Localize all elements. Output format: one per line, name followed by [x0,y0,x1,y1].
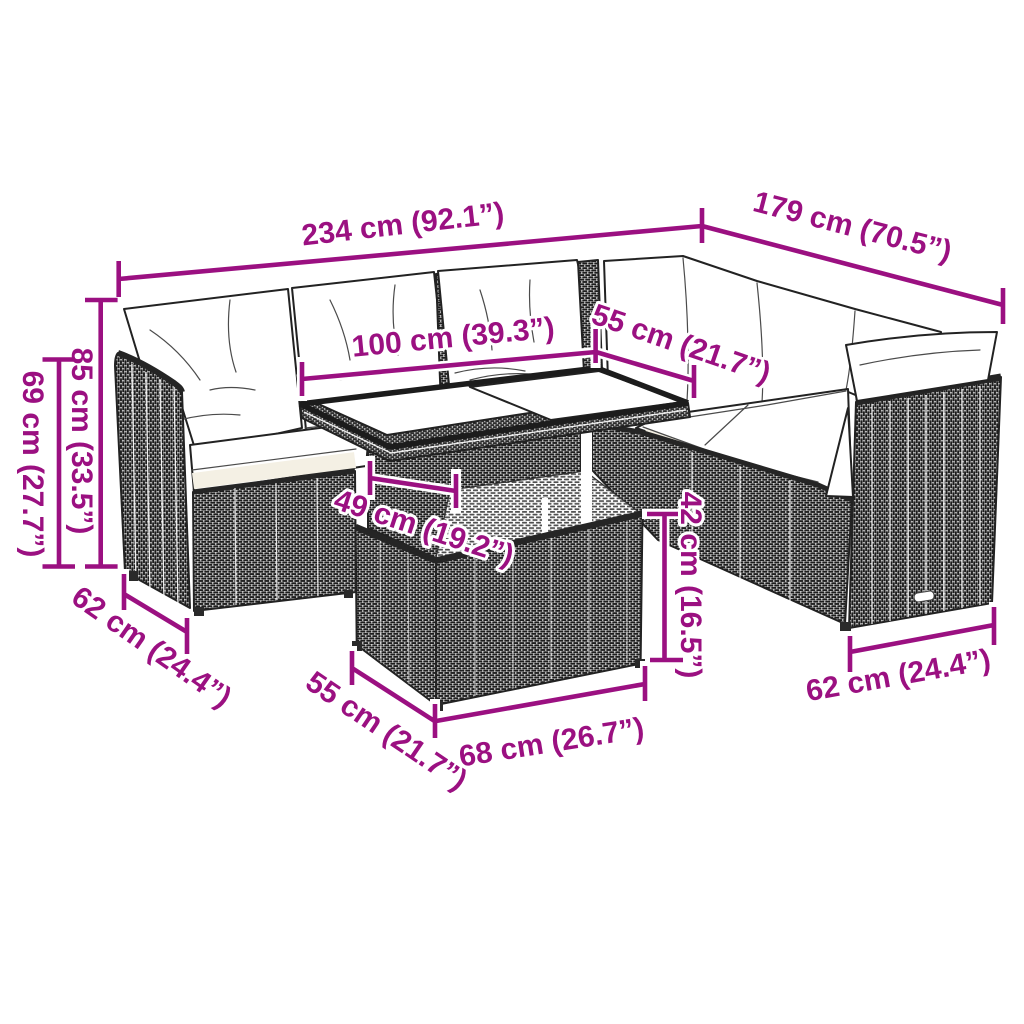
svg-text:85 cm (33.5”): 85 cm (33.5”) [65,348,98,535]
svg-text:42 cm (16.5”): 42 cm (16.5”) [674,492,707,679]
svg-text:69 cm (27.7”): 69 cm (27.7”) [16,371,49,558]
